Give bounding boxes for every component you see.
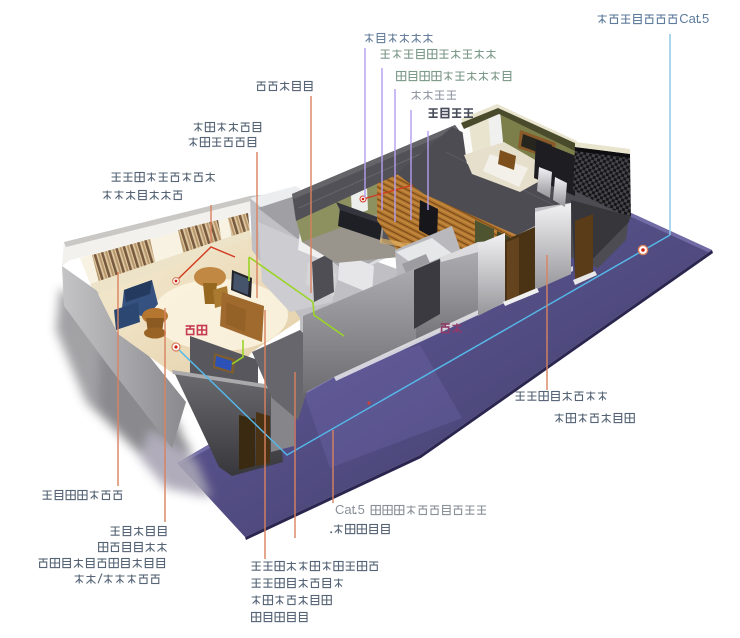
svg-text:5: 5: [702, 11, 709, 26]
svg-text:Cat: Cat: [335, 502, 356, 517]
svg-text:Cat: Cat: [679, 11, 700, 26]
svg-text:5: 5: [358, 502, 365, 517]
